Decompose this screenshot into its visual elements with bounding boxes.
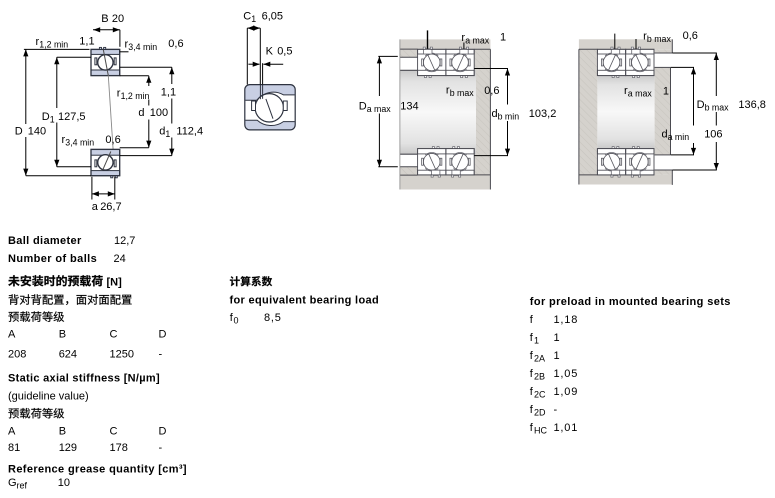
svg-text:1250: 1250 — [110, 349, 134, 361]
svg-text:2B: 2B — [534, 372, 545, 382]
svg-text:Number of balls: Number of balls — [8, 253, 97, 265]
svg-text:a max: a max — [367, 104, 392, 114]
svg-text:1,1: 1,1 — [161, 87, 176, 99]
svg-text:1: 1 — [50, 115, 55, 125]
svg-text:140: 140 — [28, 125, 46, 137]
svg-text:a max: a max — [465, 36, 490, 46]
svg-text:1: 1 — [534, 336, 539, 346]
svg-text:Reference grease quantity [cm³: Reference grease quantity [cm³] — [8, 464, 187, 476]
svg-text:1,1: 1,1 — [79, 36, 94, 48]
svg-text:D: D — [159, 426, 167, 438]
svg-text:10: 10 — [58, 477, 70, 489]
svg-text:ref: ref — [17, 481, 28, 491]
svg-text:d: d — [138, 107, 144, 119]
svg-text:D: D — [697, 99, 705, 111]
svg-text:-: - — [159, 349, 163, 361]
svg-text:1: 1 — [554, 332, 561, 344]
svg-text:G: G — [8, 477, 17, 489]
svg-text:0,6: 0,6 — [168, 38, 183, 50]
svg-text:20: 20 — [112, 13, 124, 25]
svg-text:A: A — [8, 329, 16, 341]
svg-text:106: 106 — [704, 128, 722, 140]
svg-text:112,4: 112,4 — [176, 126, 203, 138]
svg-text:1,09: 1,09 — [554, 386, 579, 398]
svg-text:3,4 min: 3,4 min — [65, 138, 94, 148]
svg-text:-: - — [159, 442, 163, 454]
svg-text:D: D — [15, 125, 23, 137]
svg-text:B: B — [59, 329, 66, 341]
svg-text:0: 0 — [234, 316, 239, 326]
svg-text:[N]: [N] — [107, 276, 123, 288]
svg-text:0,5: 0,5 — [277, 45, 292, 57]
svg-text:24: 24 — [114, 253, 126, 265]
svg-text:1: 1 — [165, 129, 170, 139]
svg-text:3,4 min: 3,4 min — [128, 42, 157, 52]
svg-text:1: 1 — [251, 14, 256, 24]
svg-text:a: a — [92, 201, 99, 213]
svg-text:Static axial stiffness [N/µm]: Static axial stiffness [N/µm] — [8, 372, 160, 384]
svg-text:D: D — [159, 329, 167, 341]
svg-text:D: D — [42, 111, 50, 123]
svg-text:1,01: 1,01 — [554, 422, 579, 434]
svg-text:C: C — [243, 10, 251, 22]
svg-text:208: 208 — [8, 349, 26, 361]
svg-text:178: 178 — [110, 442, 128, 454]
svg-text:B: B — [101, 13, 108, 25]
svg-text:2D: 2D — [534, 408, 546, 418]
svg-text:D: D — [359, 101, 367, 113]
svg-text:1: 1 — [663, 85, 669, 97]
svg-text:A: A — [8, 426, 16, 438]
svg-text:for preload in mounted bearing: for preload in mounted bearing sets — [530, 296, 731, 308]
svg-text:134: 134 — [400, 101, 418, 113]
svg-text:1,2 min: 1,2 min — [39, 40, 68, 50]
svg-text:103,2: 103,2 — [529, 108, 557, 120]
svg-text:(guideline value): (guideline value) — [8, 391, 89, 403]
svg-text:C: C — [110, 329, 118, 341]
svg-text:B: B — [59, 426, 66, 438]
svg-text:127,5: 127,5 — [58, 111, 86, 123]
svg-text:a min: a min — [668, 132, 690, 142]
svg-text:12,7: 12,7 — [114, 235, 135, 247]
svg-text:for equivalent bearing load: for equivalent bearing load — [230, 295, 380, 307]
svg-text:C: C — [110, 426, 118, 438]
svg-text:8,5: 8,5 — [264, 312, 282, 324]
svg-text:6,05: 6,05 — [262, 10, 283, 22]
svg-text:HC: HC — [534, 426, 547, 436]
svg-text:26,7: 26,7 — [100, 201, 121, 213]
svg-text:624: 624 — [59, 349, 77, 361]
svg-text:Ball diameter: Ball diameter — [8, 235, 82, 247]
svg-text:1,05: 1,05 — [554, 368, 579, 380]
svg-text:1,2 min: 1,2 min — [121, 91, 150, 101]
svg-text:b min: b min — [498, 112, 520, 122]
svg-text:K: K — [266, 45, 274, 57]
svg-text:b max: b max — [647, 34, 672, 44]
svg-text:100: 100 — [150, 107, 168, 119]
svg-text:0,6: 0,6 — [484, 85, 499, 97]
svg-text:0,6: 0,6 — [683, 30, 698, 42]
svg-text:1,18: 1,18 — [554, 314, 579, 326]
svg-text:-: - — [554, 404, 558, 416]
svg-text:1: 1 — [554, 350, 561, 362]
svg-text:136,8: 136,8 — [738, 99, 766, 111]
svg-text:2A: 2A — [534, 354, 545, 364]
svg-text:b max: b max — [450, 88, 475, 98]
svg-text:a max: a max — [628, 89, 653, 99]
svg-text:81: 81 — [8, 442, 20, 454]
svg-text:129: 129 — [59, 442, 77, 454]
svg-text:b max: b max — [705, 103, 730, 113]
svg-text:0,6: 0,6 — [105, 134, 120, 146]
svg-text:2C: 2C — [534, 390, 546, 400]
svg-text:1: 1 — [500, 32, 506, 44]
